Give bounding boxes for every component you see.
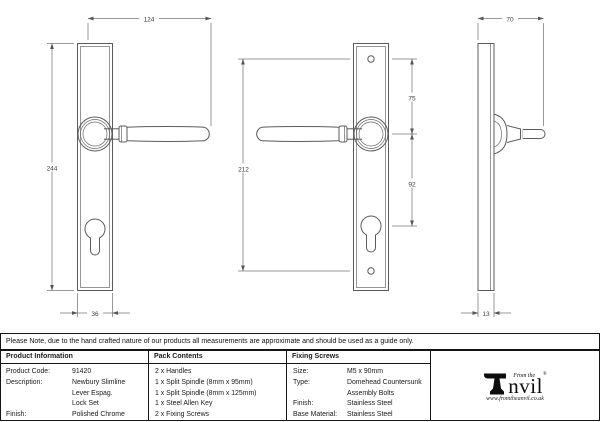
screw-type-line-1: Domehead Countersunk (347, 378, 426, 389)
back-handle-to-cylinder-dimension: 92 (392, 134, 419, 226)
pack-item: 1 x Split Spindle (8mm x 95mm) (155, 378, 282, 389)
dim-36-label: 36 (91, 311, 99, 318)
registered-mark: ® (543, 372, 547, 377)
front-width-dimension: 124 (88, 14, 211, 127)
dim-70-label: 70 (506, 16, 514, 23)
dim-212-label: 212 (238, 166, 249, 173)
pack-item: 2 x Fixing Screws (155, 410, 282, 420)
product-code-row: Product Code: 91420 (6, 367, 144, 378)
pack-item: 1 x Split Spindle (8mm x 125mm) (155, 389, 282, 400)
dim-75-label: 75 (408, 95, 416, 102)
pack-contents-header: Pack Contents (149, 351, 287, 364)
front-plate-width-dimension: 36 (60, 293, 130, 318)
screw-type-line-2: Assembly Bolts (347, 389, 426, 400)
description-label: Description: (6, 378, 72, 410)
pack-item: 1 x Steel Allen Key (155, 399, 282, 410)
front-height-dimension: 244 (42, 44, 74, 291)
finish-row: Finish: Polished Chrome (6, 410, 144, 420)
spec-table: Product Information Pack Contents Fixing… (0, 350, 600, 421)
side-view: 70 13 (461, 14, 545, 318)
product-code-value: 91420 (72, 367, 144, 378)
spec-sheet: 124 244 36 (0, 0, 600, 422)
back-view: 212 75 92 (234, 44, 419, 291)
note-text: Please Note, due to the hand crafted nat… (6, 338, 414, 345)
brand-logo-cell: From the nvil ® www.fromtheanvil.co.uk (431, 351, 599, 420)
product-information-header: Product Information (1, 351, 149, 364)
description-line-2: Lock Set (72, 399, 144, 410)
finish-label: Finish: (6, 410, 72, 420)
dim-13-label: 13 (482, 311, 490, 318)
front-view: 124 244 36 (42, 14, 211, 318)
side-projection-dimension: 70 (478, 14, 544, 127)
screw-base-material-label: Base Material: (293, 410, 347, 420)
note-bar: Please Note, due to the hand crafted nat… (0, 333, 600, 350)
product-code-label: Product Code: (6, 367, 72, 378)
description-value: Newbury Slimline Lever Espag. Lock Set (72, 378, 144, 410)
screw-finish-row: Finish: Stainless Steel (293, 399, 426, 410)
screw-size-row: Size: M5 x 90mm (293, 367, 426, 378)
screw-finish-label: Finish: (293, 399, 347, 410)
screw-type-row: Type: Domehead Countersunk Assembly Bolt… (293, 378, 426, 400)
description-row: Description: Newbury Slimline Lever Espa… (6, 378, 144, 410)
back-fixing-centres-dimension: 212 (234, 59, 350, 271)
screw-finish-value: Stainless Steel (347, 399, 426, 410)
product-information-body: Product Code: 91420 Description: Newbury… (1, 364, 149, 420)
side-thickness-dimension: 13 (461, 293, 511, 318)
description-line-1: Newbury Slimline Lever Espag. (72, 378, 144, 400)
dim-124-label: 124 (144, 16, 155, 23)
fixing-screws-body: Size: M5 x 90mm Type: Domehead Countersu… (287, 364, 431, 420)
logo-brand-text: nvil (508, 377, 543, 396)
pack-item: 2 x Handles (155, 367, 282, 378)
dim-244-label: 244 (47, 165, 58, 172)
screw-base-material-value: Stainless Steel (347, 410, 426, 420)
screw-base-material-row: Base Material: Stainless Steel (293, 410, 426, 420)
screw-type-value: Domehead Countersunk Assembly Bolts (347, 378, 426, 400)
screw-size-value: M5 x 90mm (347, 367, 426, 378)
technical-drawing: 124 244 36 (0, 0, 600, 334)
logo-website: www.fromtheanvil.co.uk (486, 396, 544, 402)
anvil-icon (483, 370, 507, 396)
anvil-logo: From the nvil ® www.fromtheanvil.co.uk (483, 370, 546, 402)
dim-92-label: 92 (408, 181, 416, 188)
fixing-screws-header: Fixing Screws (287, 351, 431, 364)
pack-contents-body: 2 x Handles 1 x Split Spindle (8mm x 95m… (149, 364, 287, 420)
screw-size-label: Size: (293, 367, 347, 378)
finish-value: Polished Chrome (72, 410, 144, 420)
screw-type-label: Type: (293, 378, 347, 400)
back-screw-to-handle-dimension: 75 (392, 59, 419, 134)
